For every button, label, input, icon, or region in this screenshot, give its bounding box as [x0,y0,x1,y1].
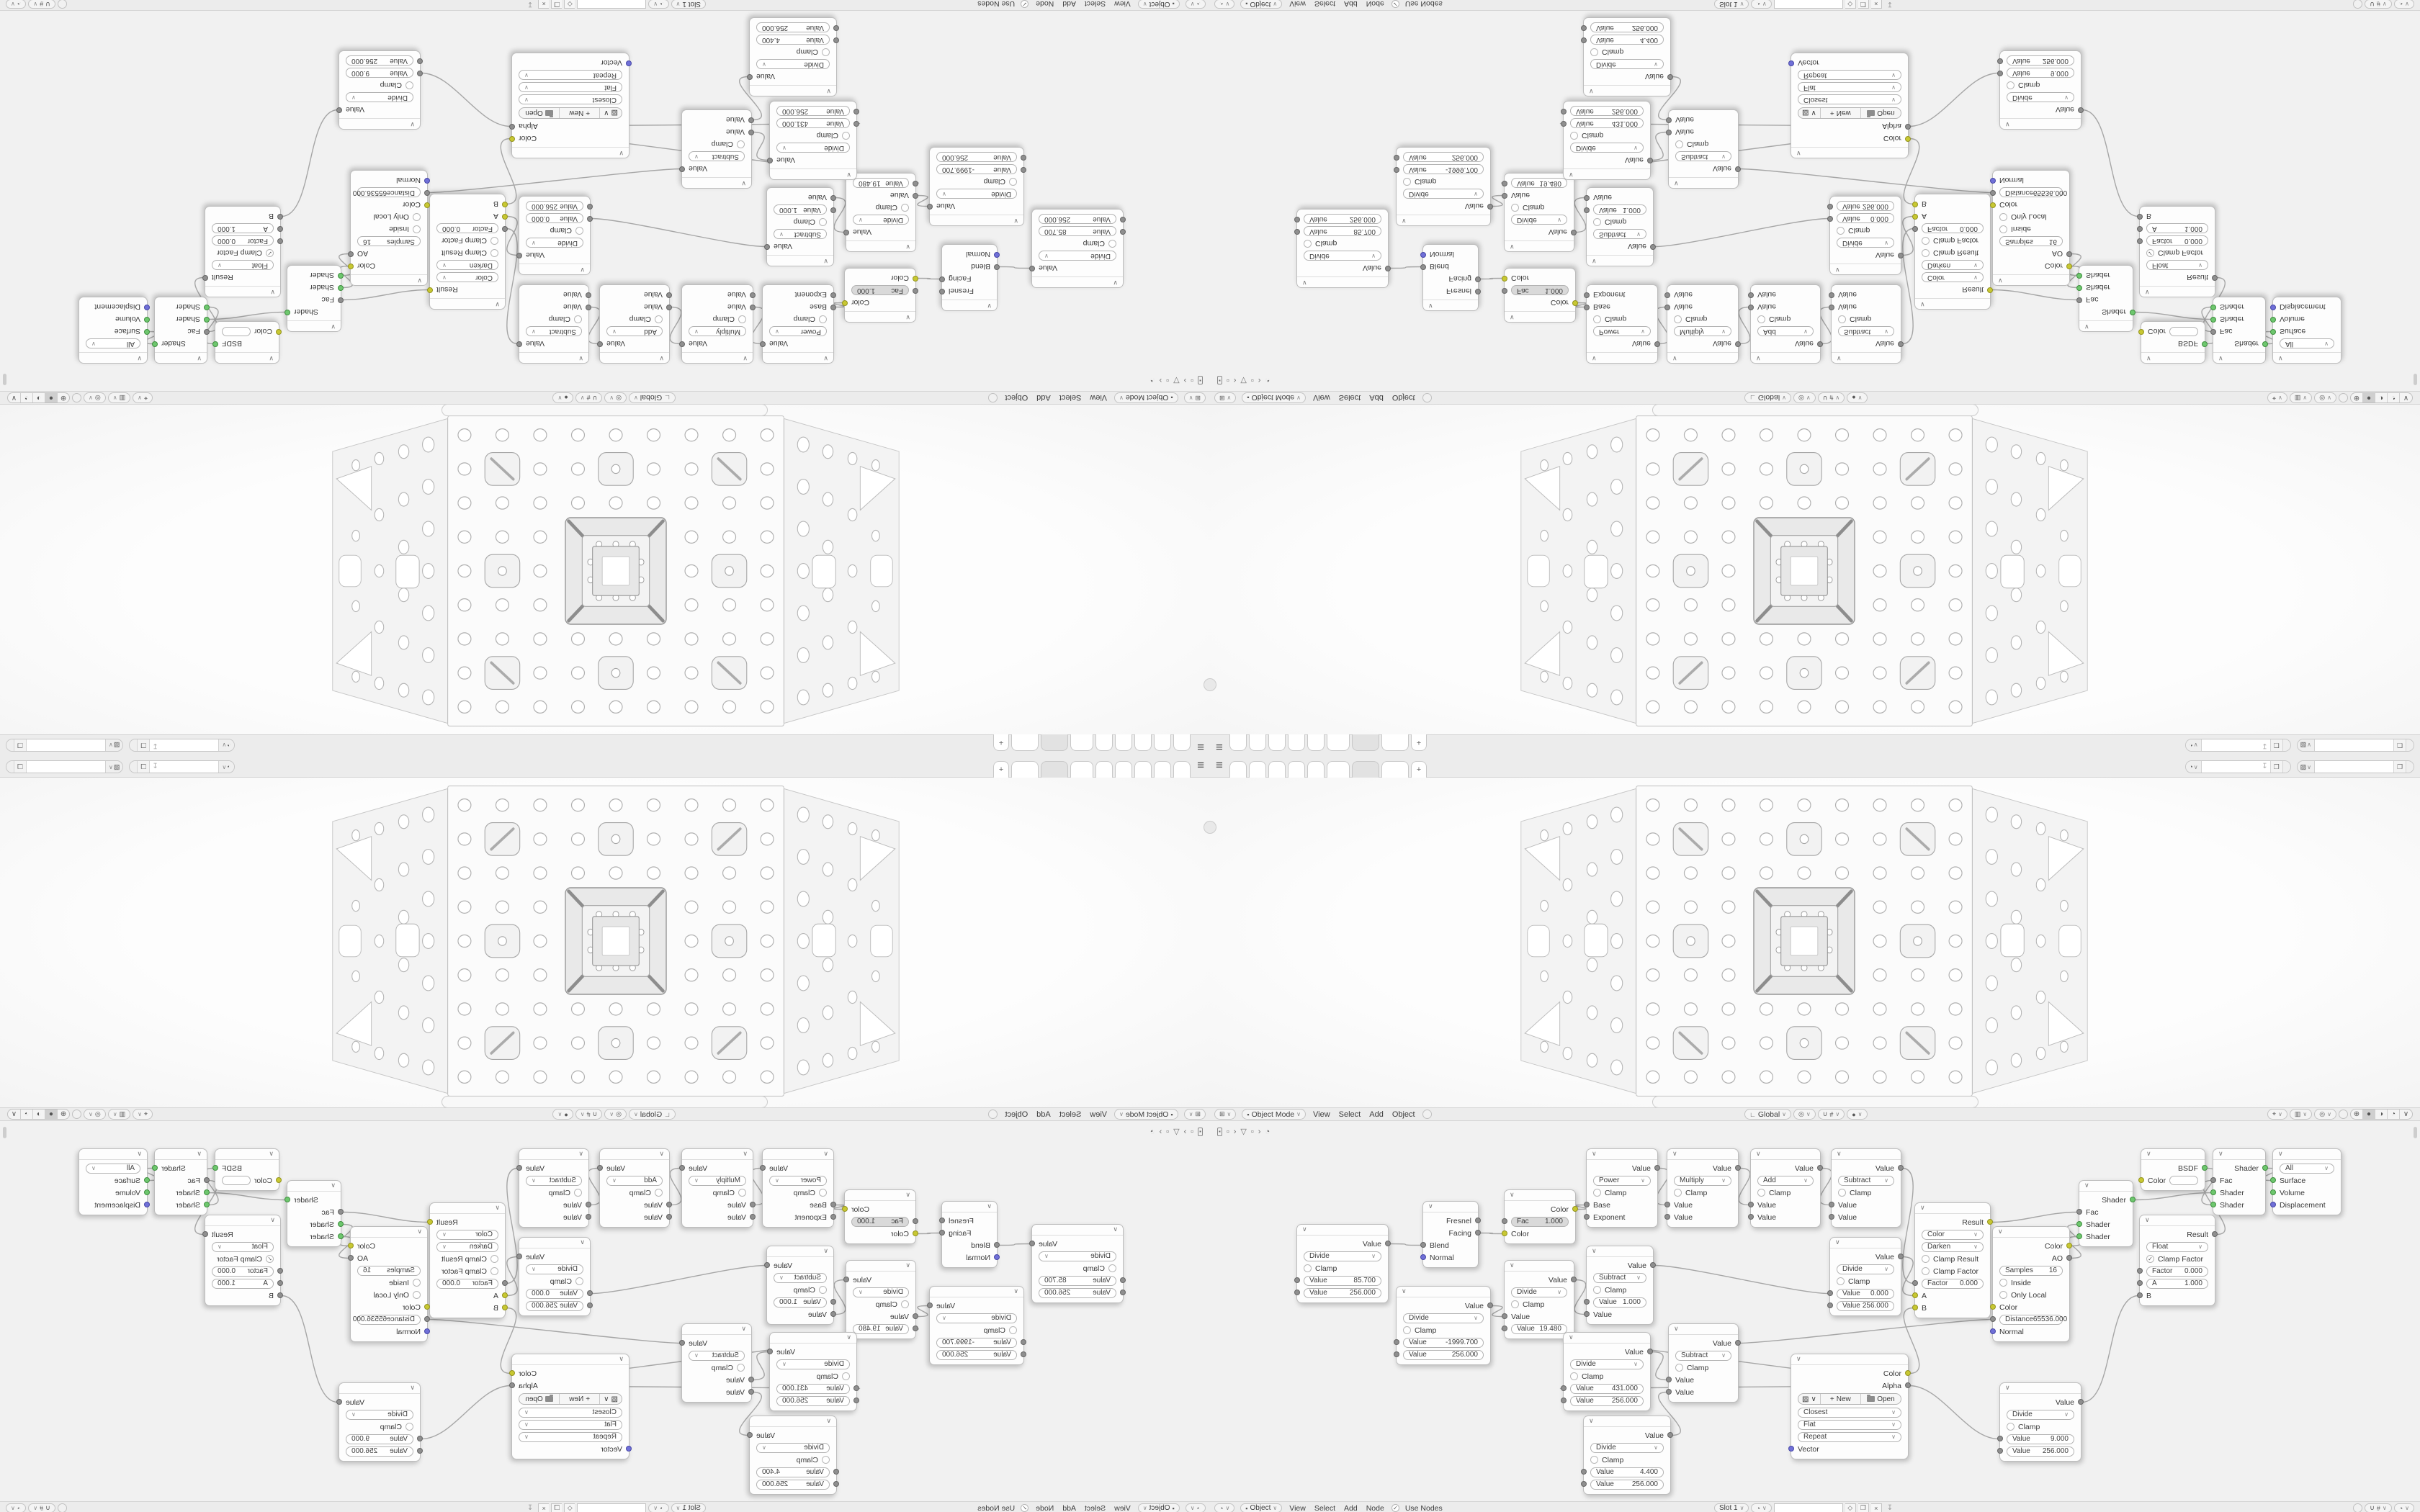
workspace-tab[interactable] [1115,734,1132,751]
collapse-icon[interactable]: ∨ [197,1150,202,1158]
browse-image-icon[interactable]: ▨∨ [2298,739,2315,751]
workspace-tab[interactable] [1154,761,1171,778]
shader-node-editor[interactable]: ▪ ▫ › ▽ ▫ › ◔ ∨ValueDivide∨ClampValue85.… [0,11,1210,391]
shader-node[interactable]: ∨FresnelFacingBlendNormal [1422,244,1479,311]
collapse-icon[interactable]: ∨ [987,302,992,310]
input-socket[interactable] [1502,181,1507,186]
node-header[interactable]: ∨ [2140,1215,2215,1226]
output-socket[interactable] [1817,1165,1823,1171]
node-checkbox[interactable] [1009,178,1017,186]
node-header[interactable]: ∨ [1397,1287,1490,1297]
input-socket[interactable] [1420,1242,1426,1248]
input-socket[interactable] [2270,1177,2276,1183]
fake-user-shield-icon[interactable]: ◇ [1845,1503,1856,1512]
node-header[interactable]: ∨ [1832,1149,1901,1160]
overlays-dropdown[interactable]: ◎∨ [2314,1109,2336,1120]
image-browse-button[interactable]: ▨∨ [1798,108,1821,118]
output-socket[interactable] [427,1219,433,1225]
input-socket[interactable] [277,1292,283,1298]
input-socket[interactable] [424,190,430,196]
node-enum-dropdown[interactable]: Add∨ [606,1176,663,1186]
node-header[interactable]: ∨ [351,1227,427,1238]
new-image-button[interactable]: +New [1821,108,1861,118]
collapse-icon[interactable]: ∨ [1920,1204,1925,1212]
snap-toggle[interactable] [2353,0,2362,9]
shader-node-editor[interactable]: ▪ ▫ › ▽ ▫ › ◔ ∨ValueDivide∨ClampValue85.… [1210,11,2420,391]
output-socket[interactable] [1905,136,1911,142]
browse-image-icon[interactable]: ▨∨ [2298,761,2315,773]
node-header[interactable]: ∨ [519,1238,590,1248]
input-socket[interactable] [913,1313,918,1319]
node-header[interactable]: ∨ [1915,298,1990,309]
input-socket[interactable] [833,25,839,31]
collapse-icon[interactable]: ∨ [2005,1384,2010,1392]
shading-wireframe-button[interactable]: ⊕ [2351,392,2363,403]
copy-image-icon[interactable]: ❐ [2394,761,2406,773]
image-browse-button[interactable]: ▨∨ [599,108,622,118]
collapse-icon[interactable]: ∨ [2218,1150,2223,1158]
input-socket[interactable] [1990,1328,1996,1334]
node-header[interactable]: ∨ [750,1416,836,1427]
workspace-tab[interactable] [1095,761,1113,778]
workspace-tab[interactable] [1070,734,1093,751]
node-checkbox[interactable] [901,1300,909,1308]
collapse-icon[interactable]: ∨ [197,354,202,362]
input-socket[interactable] [1584,1214,1590,1220]
input-socket[interactable] [666,1214,672,1220]
unlink-close-icon[interactable]: × [538,1503,549,1512]
output-socket[interactable] [679,341,685,347]
node-enum-dropdown[interactable]: Closest∨ [519,1408,622,1418]
output-socket[interactable] [1905,1382,1911,1388]
input-socket[interactable] [277,238,283,244]
shader-node[interactable]: ∨ValueDivide∨ClampValue4.400Value256.000 [1583,17,1671,96]
collapse-icon[interactable]: ∨ [417,1228,422,1236]
menu-view[interactable]: View [1088,394,1108,402]
node-enum-dropdown[interactable]: Divide∨ [1304,251,1381,261]
menu-add[interactable]: Add [1035,1110,1052,1119]
collapse-icon[interactable]: ∨ [1402,1287,1407,1295]
collapse-icon[interactable]: ∨ [1998,276,2003,284]
shader-node[interactable]: ∨ValueDivide∨ClampValue4.400Value256.000 [749,1416,837,1495]
input-socket[interactable] [1120,217,1126,222]
collapse-icon[interactable]: ∨ [1402,217,1407,225]
input-socket[interactable] [2076,273,2082,279]
input-socket[interactable] [338,1233,344,1239]
node-header[interactable]: ∨ [1669,1324,1738,1335]
node-checkbox[interactable] [575,1277,583,1285]
shader-node[interactable]: ∨ValueDivide∨ClampValue9.000Value256.000 [1999,1382,2081,1462]
menu-object[interactable]: Object [1003,394,1029,402]
node-header[interactable]: ∨ [339,118,420,129]
output-socket[interactable] [842,1206,848,1212]
node-enum-dropdown[interactable]: Divide∨ [526,238,583,248]
input-socket[interactable] [830,1202,836,1207]
menu-add[interactable]: Add [1343,0,1359,9]
node-enum-dropdown[interactable]: Subtract∨ [1593,1273,1646,1283]
asset-shelf-handle[interactable] [1652,404,1978,416]
input-socket[interactable] [2270,1189,2276,1195]
collapse-icon[interactable]: ∨ [741,179,746,187]
shading-material-button[interactable]: ◑ [2375,1109,2388,1120]
shader-node[interactable]: ∨ValueDivide∨ClampValue9.000Value256.000 [1999,50,2081,130]
input-socket[interactable] [1021,1351,1026,1357]
shader-node[interactable]: ∨ValueDivide∨ClampValueValue19.480 [846,173,916,252]
overlays-dropdown[interactable]: ◎∨ [2314,392,2336,403]
node-value-slider[interactable]: Factor0.000 [212,236,274,246]
node-checkbox[interactable] [842,132,850,140]
node-value-slider[interactable]: Value1.000 [774,205,827,215]
input-socket[interactable] [1584,1202,1590,1207]
collapse-icon[interactable]: ∨ [826,1417,831,1425]
input-socket[interactable] [338,1209,344,1215]
node-header[interactable]: ∨ [600,352,669,363]
menu-node[interactable]: Node [1034,1504,1055,1512]
node-checkbox[interactable] [1304,240,1312,248]
output-socket[interactable] [509,1382,515,1388]
node-checkbox[interactable] [1999,1279,2007,1287]
input-socket[interactable] [2210,1189,2216,1195]
node-value-slider[interactable]: Samples16 [357,1266,421,1276]
shading-wireframe-button[interactable]: ⊕ [57,1109,69,1120]
input-socket[interactable] [1997,71,2003,76]
overlays-dropdown[interactable]: ◔∨ [2394,1503,2414,1512]
node-value-slider[interactable]: Value19.480 [853,179,909,189]
input-socket[interactable] [913,181,918,186]
node-checkbox[interactable] [413,1291,421,1299]
node-value-slider[interactable]: A1.000 [212,1279,274,1289]
snap-type-dropdown[interactable]: ∪#∨ [2365,0,2391,9]
input-socket[interactable] [277,214,283,220]
collapse-icon[interactable]: ∨ [743,1150,748,1158]
node-enum-dropdown[interactable]: Flat∨ [519,83,622,93]
input-socket[interactable] [417,1448,423,1454]
collapse-icon[interactable]: ∨ [578,1150,583,1158]
node-header[interactable]: ∨ [767,255,833,266]
collapse-icon[interactable]: ∨ [580,266,585,274]
shader-node[interactable]: ∨ValueDivide∨ClampValue9.000Value256.000 [339,50,421,130]
node-header[interactable]: ∨ [2273,1149,2341,1160]
input-socket[interactable] [750,292,756,298]
input-socket[interactable] [144,317,150,323]
node-checkbox[interactable] [655,315,663,323]
output-socket[interactable] [152,341,158,347]
node-checkbox[interactable] [822,1456,830,1464]
input-socket[interactable] [1990,1316,1996,1322]
node-header[interactable]: ∨ [682,1149,753,1160]
node-enum-dropdown[interactable]: Color∨ [1922,273,1984,283]
input-socket[interactable] [1827,1302,1833,1308]
node-checkbox[interactable] [1757,315,1765,323]
node-header[interactable]: ∨ [430,1203,505,1214]
input-socket[interactable] [338,273,344,279]
node-header[interactable]: ∨ [519,352,588,363]
node-value-slider[interactable]: Factor0.000 [2146,1266,2208,1277]
node-enum-dropdown[interactable]: Repeat∨ [1798,71,1901,81]
input-socket[interactable] [750,1202,756,1207]
shader-node[interactable]: ∨ColorFac1.000Color [844,268,916,323]
collapse-icon[interactable]: ∨ [1920,300,1925,308]
viewport-3d[interactable] [1210,405,2420,734]
node-header[interactable]: ∨ [845,311,915,322]
use-nodes-checkbox[interactable]: ✓ [1021,0,1028,8]
input-socket[interactable] [626,1446,632,1452]
node-header[interactable]: ∨ [430,298,505,309]
collapse-icon[interactable]: ∨ [1569,1333,1574,1341]
node-value-slider[interactable]: Value0.000 [526,1289,583,1299]
workspace-tab[interactable] [1249,761,1266,778]
new-image-button[interactable]: +New [559,1394,599,1404]
node-checkbox[interactable] [819,315,827,323]
collapse-icon[interactable]: ∨ [1592,354,1597,362]
collapse-icon[interactable]: ∨ [410,120,415,128]
workspace-tab[interactable] [1249,734,1266,751]
proportional-edit-dropdown[interactable]: ●∨ [1847,392,1867,403]
shader-node[interactable]: ∨ValueSubtract∨ClampValue1.000Value [766,1246,834,1325]
node-enum-dropdown[interactable]: Divide∨ [853,215,909,225]
input-socket[interactable] [1394,155,1399,161]
node-header[interactable]: ∨ [1584,85,1670,96]
output-socket[interactable] [2066,1243,2072,1248]
workspace-tab[interactable] [1134,734,1152,751]
node-value-slider[interactable]: Fac1.000 [851,1217,909,1227]
node-header[interactable]: ∨ [600,1149,669,1160]
input-socket[interactable] [1664,1202,1670,1207]
copy-image-icon[interactable]: ❐ [14,761,26,773]
input-socket[interactable] [1294,217,1300,222]
node-header[interactable]: ∨ [2141,1149,2205,1160]
input-socket[interactable] [586,1214,591,1220]
node-header[interactable]: ∨ [682,352,753,363]
node-value-slider[interactable]: A1.000 [212,224,274,234]
add-workspace-tab-button[interactable]: + [993,734,1009,751]
output-socket[interactable] [939,1230,945,1236]
input-socket[interactable] [2137,214,2143,220]
node-header[interactable]: ∨ [1505,240,1574,251]
input-socket[interactable] [1748,292,1754,298]
image-name-field[interactable] [2315,739,2394,751]
input-socket[interactable] [1997,1448,2003,1454]
node-checkbox[interactable] [1590,1456,1598,1464]
material-name-field[interactable]: ↧ [149,739,218,751]
material-name-field[interactable]: ↧ [2202,761,2271,773]
output-socket[interactable] [2078,107,2084,113]
node-checkbox[interactable] [738,1189,746,1197]
node-value-slider[interactable]: Fac1.000 [851,286,909,296]
input-socket[interactable] [666,1202,672,1207]
output-socket[interactable] [843,1277,849,1282]
gizmos-dropdown[interactable]: ⌖∨ [133,1109,153,1120]
node-enum-dropdown[interactable]: Divide∨ [1570,143,1644,153]
xray-toggle[interactable]: ▥∨ [108,1109,130,1120]
node-value-slider[interactable]: Value256.000 [1304,1288,1381,1298]
output-socket[interactable] [2202,341,2208,347]
node-value-slider[interactable]: Value1.000 [1593,1297,1646,1308]
node-header[interactable]: ∨ [1564,1333,1650,1344]
input-socket[interactable] [853,1385,859,1391]
input-socket[interactable] [1581,25,1587,31]
input-socket[interactable] [748,1389,754,1395]
output-socket[interactable] [1987,287,1993,293]
node-enum-dropdown[interactable]: Darken∨ [1922,261,1984,271]
input-socket[interactable] [833,1469,839,1475]
output-socket[interactable] [2262,1165,2268,1171]
material-id-selector[interactable]: ◔∨ ↧ ❐ [2185,760,2290,773]
editor-type-button[interactable]: ◔∨ [1186,0,1206,9]
node-header[interactable]: ∨ [1832,352,1901,363]
browse-material-button[interactable]: ◔∨ [648,0,668,9]
output-socket[interactable] [2130,1197,2136,1202]
input-socket[interactable] [417,1436,423,1441]
copy-material-icon[interactable]: ❐ [2271,739,2283,751]
input-socket[interactable] [666,305,672,310]
input-socket[interactable] [587,1302,593,1308]
shading-rendered-button[interactable]: ◔ [2388,392,2400,403]
input-socket[interactable] [2210,329,2216,335]
workspace-tab[interactable] [1307,734,1325,751]
input-socket[interactable] [913,288,918,294]
node-value-slider[interactable]: Value256.000 [756,1480,830,1490]
node-checkbox[interactable] [413,213,421,221]
node-value-slider[interactable]: Value19.480 [853,1324,909,1334]
node-value-slider[interactable]: Factor0.000 [2146,236,2208,246]
menu-node[interactable]: Node [1034,0,1055,9]
shading-options-chevron[interactable]: ∨ [8,392,20,403]
node-value-slider[interactable]: Samples16 [1999,1266,2063,1276]
node-value-slider[interactable]: Factor0.000 [1922,224,1984,234]
shader-node[interactable]: ∨ValueDivide∨ClampValue-1999.700Value256… [1396,1286,1491,1365]
input-socket[interactable] [666,292,672,298]
output-socket[interactable] [348,264,354,269]
new-image-button[interactable]: +New [559,108,599,118]
node-header[interactable]: ∨ [1791,1354,1908,1365]
input-socket[interactable] [1394,1339,1399,1345]
node-enum-dropdown[interactable]: All∨ [86,339,140,349]
node-value-slider[interactable]: Distance65536.000 [1999,1315,2063,1325]
shader-node[interactable]: ∨ValueAdd∨ClampValueValue [599,1148,670,1228]
menu-node[interactable]: Node [1365,0,1386,9]
node-header[interactable]: ∨ [1505,1261,1574,1272]
node-enum-dropdown[interactable]: Divide∨ [756,1443,830,1453]
shader-node[interactable]: ∨ShaderFacShaderShader [154,1148,207,1215]
node-checkbox[interactable] [1593,1189,1601,1197]
node-enum-dropdown[interactable]: Subtract∨ [526,327,582,337]
output-socket[interactable] [1898,1254,1904,1259]
node-header[interactable]: ∨ [1587,255,1653,266]
shader-node[interactable]: ∨ValueSubtract∨ClampValue1.000Value [1586,1246,1654,1325]
input-socket[interactable] [994,1254,1000,1260]
node-checkbox[interactable] [413,225,421,233]
output-socket[interactable] [1647,158,1653,163]
node-enum-dropdown[interactable]: Add∨ [1757,1176,1814,1186]
input-socket[interactable] [144,1177,150,1183]
workspace-tab[interactable] [1070,761,1093,778]
menu-select[interactable]: Select [1083,0,1107,9]
image-browse-button[interactable]: ▨∨ [599,1394,622,1404]
input-socket[interactable] [2270,317,2276,323]
scrollbar[interactable] [3,1127,6,1138]
shader-node[interactable]: ∨ValueSubtract∨ClampValueValue [519,284,589,364]
input-socket[interactable] [1561,121,1567,127]
proportional-edit-dropdown[interactable]: ●∨ [552,1109,573,1120]
tool-settings-toggle[interactable] [1422,393,1432,402]
collapse-icon[interactable]: ∨ [1796,1355,1801,1363]
mode-dropdown[interactable]: ▪Object Mode∨ [1114,392,1178,403]
input-socket[interactable] [626,60,632,66]
collapse-icon[interactable]: ∨ [1796,149,1801,157]
menu-select[interactable]: Select [1313,1504,1337,1512]
input-socket[interactable] [204,1202,210,1207]
node-header[interactable]: ∨ [1830,1238,1901,1248]
viewport-3d[interactable] [0,778,1210,1107]
collapse-icon[interactable]: ∨ [2145,1216,2150,1224]
shader-node[interactable]: ∨All∨SurfaceVolumeDisplacement [2272,1148,2341,1215]
node-checkbox[interactable] [1108,1264,1116,1272]
shading-material-button[interactable]: ◑ [2375,392,2388,403]
input-socket[interactable] [1829,292,1834,298]
menu-select[interactable]: Select [1083,1504,1107,1512]
node-header[interactable]: ∨ [1587,1246,1653,1257]
input-socket[interactable] [204,305,210,310]
input-socket[interactable] [1666,1389,1672,1395]
node-header[interactable]: ∨ [519,1149,588,1160]
workspace-tab[interactable] [1327,734,1350,751]
shader-node[interactable]: ∨ColorAOSamples16InsideOnly LocalColorDi… [350,1226,428,1342]
material-id-selector[interactable]: ◔∨ ↧ ❐ [2185,739,2290,752]
node-value-slider[interactable]: Value-1999.700 [936,1338,1017,1348]
shader-node[interactable]: ∨ColorAOSamples16InsideOnly LocalColorDi… [350,170,428,286]
collapse-icon[interactable]: ∨ [270,1216,275,1224]
menu-view[interactable]: View [1312,1110,1332,1119]
menu-select[interactable]: Select [1313,0,1337,9]
collapse-icon[interactable]: ∨ [1302,279,1307,287]
input-socket[interactable] [1502,288,1507,294]
output-socket[interactable] [284,310,290,315]
output-socket[interactable] [1987,1219,1993,1225]
node-value-slider[interactable]: Value256.000 [346,1446,413,1457]
input-socket[interactable] [1788,60,1794,66]
shader-node[interactable]: ∨FresnelFacingBlendNormal [941,244,998,311]
node-header[interactable]: ∨ [1993,1227,2069,1238]
node-checkbox[interactable]: ✓ [266,1255,274,1263]
node-value-slider[interactable]: Value256.000 [936,1350,1017,1360]
shader-node[interactable]: ∨ValueDivide∨ClampValue0.000Value256.000 [1829,1237,1901,1316]
input-socket[interactable] [144,1189,150,1195]
use-nodes-checkbox[interactable]: ✓ [1021,1504,1028,1512]
node-value-slider[interactable]: Value256.000 [1304,215,1381,225]
menu-hamburger-icon[interactable]: ≡ [1197,739,1204,754]
sidebar-toggle-tab[interactable] [1204,821,1210,834]
new-image-button[interactable]: +New [1821,1394,1861,1404]
input-socket[interactable] [1990,178,1996,184]
shading-solid-button[interactable]: ● [2363,1109,2375,1120]
output-socket[interactable] [1735,1165,1741,1171]
add-workspace-tab-button[interactable]: + [993,761,1009,778]
collapse-icon[interactable]: ∨ [905,313,910,321]
node-header[interactable]: ∨ [215,1149,279,1160]
node-checkbox[interactable] [738,315,746,323]
input-socket[interactable] [748,117,754,123]
snap-dropdown[interactable]: ∪#∨ [575,1109,602,1120]
node-value-slider[interactable]: Value4.400 [1590,35,1664,45]
node-enum-dropdown[interactable]: Power∨ [1593,327,1651,337]
workspace-tab[interactable] [1173,761,1191,778]
collapse-icon[interactable]: ∨ [1592,1247,1597,1255]
add-workspace-tab-button[interactable]: + [1411,734,1427,751]
input-socket[interactable] [1502,1230,1507,1236]
node-value-slider[interactable]: Value9.000 [2007,68,2074,78]
input-socket[interactable] [1666,1377,1672,1382]
